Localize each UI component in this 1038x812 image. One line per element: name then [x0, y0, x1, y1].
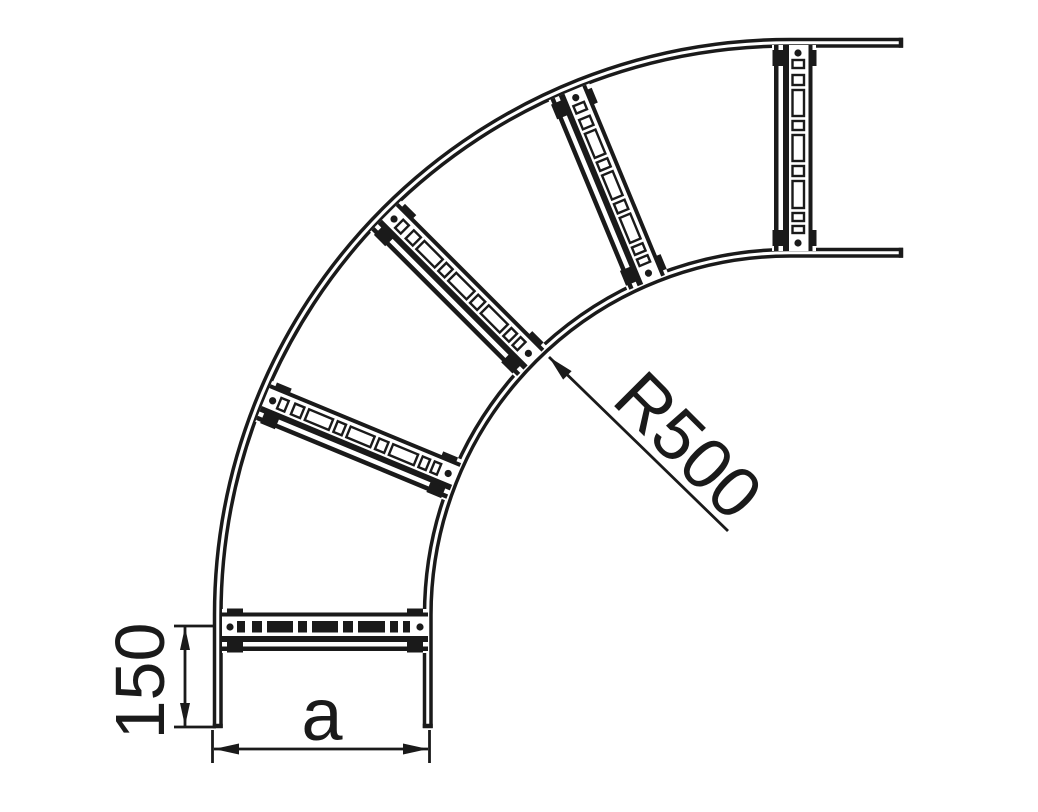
rung-slot	[793, 181, 805, 208]
radius-dimension: R500	[545, 353, 777, 535]
rivet	[794, 239, 801, 246]
technical-drawing: 150 a R500	[0, 0, 1038, 812]
rung-slot	[793, 226, 805, 233]
rung-edge	[222, 636, 428, 642]
rung-slot	[403, 621, 410, 633]
rung-slot	[237, 621, 245, 633]
rung-tab	[227, 609, 243, 614]
rivet	[794, 49, 801, 56]
rung-tab	[812, 50, 817, 66]
rung	[370, 200, 547, 377]
rung-tab	[407, 642, 423, 653]
rung-edge	[378, 220, 528, 370]
radius-label: R500	[599, 357, 777, 535]
rung-slot	[298, 621, 307, 633]
rung	[772, 45, 817, 251]
arrowhead	[180, 627, 190, 650]
rung-tab	[227, 642, 243, 653]
drawing-canvas: 150 a R500	[0, 0, 1038, 812]
rung-offset-dimension-label: 150	[101, 623, 179, 740]
rung-slot	[793, 121, 805, 130]
rung	[255, 381, 462, 501]
dimension-width: a	[213, 673, 430, 763]
rung-tab	[407, 609, 423, 614]
rung-slot	[793, 166, 805, 176]
rung-slot	[312, 621, 338, 633]
rung-tab	[773, 230, 784, 246]
rungs	[222, 45, 817, 653]
rung-slot	[793, 75, 805, 85]
rung-slot	[358, 621, 385, 633]
rung-slot	[793, 135, 805, 161]
rung	[549, 83, 669, 290]
rung-slot	[343, 621, 353, 633]
rung-tab	[773, 50, 784, 66]
rung-edge	[222, 613, 428, 617]
rung-flange	[222, 647, 428, 652]
arrowhead	[180, 703, 190, 726]
width-dimension-label: a	[301, 673, 343, 756]
rung-edge	[783, 45, 789, 251]
rung-slot	[252, 621, 262, 633]
rung-slot	[793, 213, 805, 221]
rung-flange	[774, 45, 779, 251]
rivet	[416, 623, 423, 630]
rung-slot	[793, 90, 805, 116]
dimension-rung-offset: 150	[101, 623, 216, 740]
rung-slot	[390, 621, 398, 633]
rivet	[226, 623, 233, 630]
rung-slot	[267, 621, 293, 633]
rung-slot	[793, 60, 805, 68]
rung-edge	[809, 45, 813, 251]
arrowhead	[214, 744, 239, 755]
rung	[222, 609, 428, 654]
rung-tab	[812, 230, 817, 246]
arrowhead	[403, 744, 428, 755]
